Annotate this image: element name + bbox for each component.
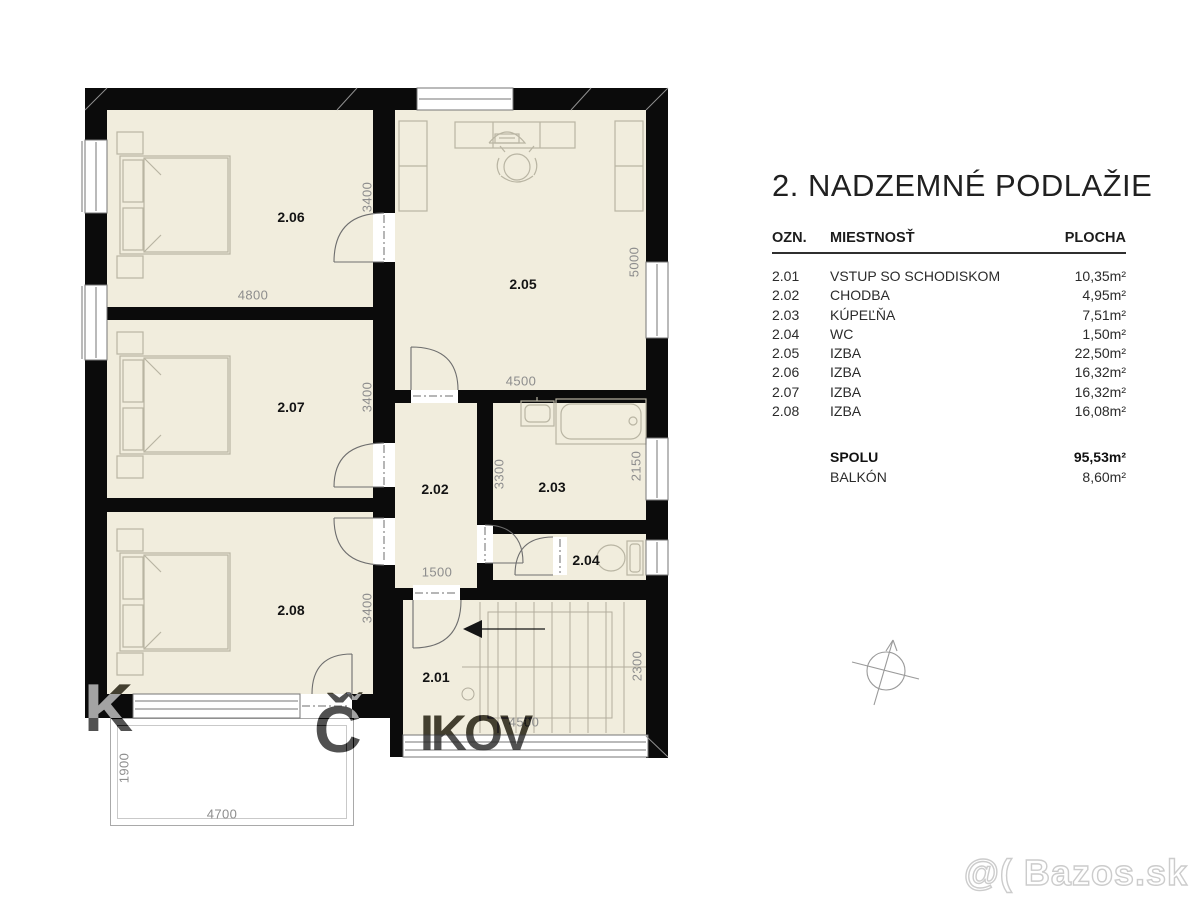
watermark-fragment: IKOV	[420, 708, 530, 758]
wall	[373, 487, 395, 518]
dimension-label: 2300	[630, 651, 645, 682]
legend-total-area: 95,53m²	[1031, 448, 1126, 467]
door-opening	[553, 537, 567, 575]
legend-balcony-label: BALKÓN	[830, 468, 1031, 487]
window	[85, 140, 107, 213]
watermark-fragment: K	[84, 674, 133, 742]
dimension-label: 3400	[360, 593, 375, 624]
room-label-2-05: 2.05	[509, 276, 536, 292]
wall	[85, 360, 107, 694]
door-opening	[411, 390, 458, 403]
legend-area: 4,95m²	[1031, 286, 1126, 305]
wall	[646, 575, 668, 758]
legend-area: 16,32m²	[1031, 363, 1126, 382]
legend-total-row: SPOLU 95,53m²	[772, 448, 1126, 467]
wall	[460, 588, 477, 600]
wall	[107, 498, 373, 512]
wall	[646, 88, 668, 262]
door-opening	[373, 213, 395, 262]
legend-row: 2.07 IZBA 16,32m²	[772, 383, 1126, 402]
legend-row: 2.08 IZBA 16,08m²	[772, 402, 1126, 421]
legend-row: 2.03 KÚPEĽŇA 7,51m²	[772, 306, 1126, 325]
room-label-2-03: 2.03	[538, 479, 565, 495]
legend-row: 2.05 IZBA 22,50m²	[772, 344, 1126, 363]
legend-room: IZBA	[830, 383, 1031, 402]
wall	[395, 390, 411, 403]
legend-totals: SPOLU 95,53m² BALKÓN 8,60m²	[772, 448, 1126, 487]
legend-ozn: 2.04	[772, 325, 830, 344]
door-opening	[373, 518, 395, 565]
legend-area: 16,32m²	[1031, 383, 1126, 402]
door-opening	[373, 443, 395, 487]
window	[417, 88, 513, 110]
legend-ozn: 2.02	[772, 286, 830, 305]
legend-area: 1,50m²	[1031, 325, 1126, 344]
wall	[646, 500, 668, 540]
legend-ozn: 2.05	[772, 344, 830, 363]
legend-room: CHODBA	[830, 286, 1031, 305]
dimension-label: 4800	[238, 288, 269, 303]
legend-header-room: MIESTNOSŤ	[830, 230, 1031, 246]
legend-balcony-row: BALKÓN 8,60m²	[772, 468, 1126, 487]
dimension-label: 1500	[422, 565, 453, 580]
legend-header: OZN. MIESTNOSŤ PLOCHA	[772, 230, 1126, 254]
wall	[458, 390, 646, 403]
window	[646, 438, 668, 500]
legend-room: IZBA	[830, 344, 1031, 363]
wall	[107, 307, 373, 320]
legend-row: 2.02 CHODBA 4,95m²	[772, 286, 1126, 305]
legend-room: KÚPEĽŇA	[830, 306, 1031, 325]
legend-room: IZBA	[830, 363, 1031, 382]
dimension-label: 1900	[117, 753, 132, 784]
window	[85, 285, 107, 360]
wall	[390, 588, 413, 600]
page-title: 2. NADZEMNÉ PODLAŽIE	[772, 168, 1126, 204]
dimension-label: 3400	[360, 182, 375, 213]
room-label-2-01: 2.01	[422, 669, 449, 685]
legend-balcony-area: 8,60m²	[1031, 468, 1126, 487]
room-area	[107, 110, 373, 694]
room-label-2-04: 2.04	[572, 552, 599, 568]
wall	[513, 88, 668, 110]
spacer	[772, 468, 830, 487]
bazos-watermark: @( Bazos.sk	[964, 852, 1188, 894]
wall	[390, 735, 403, 757]
wall	[477, 563, 493, 580]
legend-area: 22,50m²	[1031, 344, 1126, 363]
dimension-label: 2150	[629, 451, 644, 482]
legend-ozn: 2.03	[772, 306, 830, 325]
balcony-inner-line	[117, 725, 347, 819]
window	[133, 694, 300, 718]
wall	[646, 338, 668, 438]
dimension-label: 3400	[360, 382, 375, 413]
wall	[85, 213, 107, 285]
legend-ozn: 2.06	[772, 363, 830, 382]
wall	[85, 88, 107, 140]
spacer	[772, 448, 830, 467]
window	[646, 262, 668, 338]
door-opening	[477, 525, 493, 563]
door-opening	[413, 585, 460, 600]
compass-icon	[830, 620, 950, 730]
wall	[373, 110, 395, 213]
wall	[648, 735, 668, 757]
dimension-label: 3300	[492, 459, 507, 490]
wall	[493, 520, 646, 534]
legend-area: 7,51m²	[1031, 306, 1126, 325]
legend-row: 2.06 IZBA 16,32m²	[772, 363, 1126, 382]
legend-room: VSTUP SO SCHODISKOM	[830, 267, 1031, 286]
wall	[390, 600, 403, 735]
watermark-fragment: Č	[314, 696, 362, 762]
legend-area: 16,08m²	[1031, 402, 1126, 421]
legend-total-label: SPOLU	[830, 448, 1031, 467]
legend-row: 2.01 VSTUP SO SCHODISKOM 10,35m²	[772, 267, 1126, 286]
dimension-label: 5000	[627, 247, 642, 278]
legend-header-ozn: OZN.	[772, 230, 830, 246]
room-area	[395, 110, 646, 735]
wall	[85, 88, 417, 110]
legend-rows: 2.01 VSTUP SO SCHODISKOM 10,35m² 2.02 CH…	[772, 267, 1126, 421]
dimension-label: 4700	[207, 807, 238, 822]
legend-ozn: 2.01	[772, 267, 830, 286]
room-label-2-07: 2.07	[277, 399, 304, 415]
dimension-label: 4500	[506, 374, 537, 389]
legend-area: 10,35m²	[1031, 267, 1126, 286]
room-label-2-06: 2.06	[277, 209, 304, 225]
legend-ozn: 2.08	[772, 402, 830, 421]
legend-row: 2.04 WC 1,50m²	[772, 325, 1126, 344]
wall	[477, 580, 646, 600]
room-label-2-02: 2.02	[421, 481, 448, 497]
window	[646, 540, 668, 575]
legend-panel: 2. NADZEMNÉ PODLAŽIE OZN. MIESTNOSŤ PLOC…	[772, 168, 1126, 487]
legend-header-area: PLOCHA	[1031, 230, 1126, 246]
legend-room: WC	[830, 325, 1031, 344]
legend-ozn: 2.07	[772, 383, 830, 402]
room-label-2-08: 2.08	[277, 602, 304, 618]
legend-room: IZBA	[830, 402, 1031, 421]
wall	[373, 262, 395, 443]
